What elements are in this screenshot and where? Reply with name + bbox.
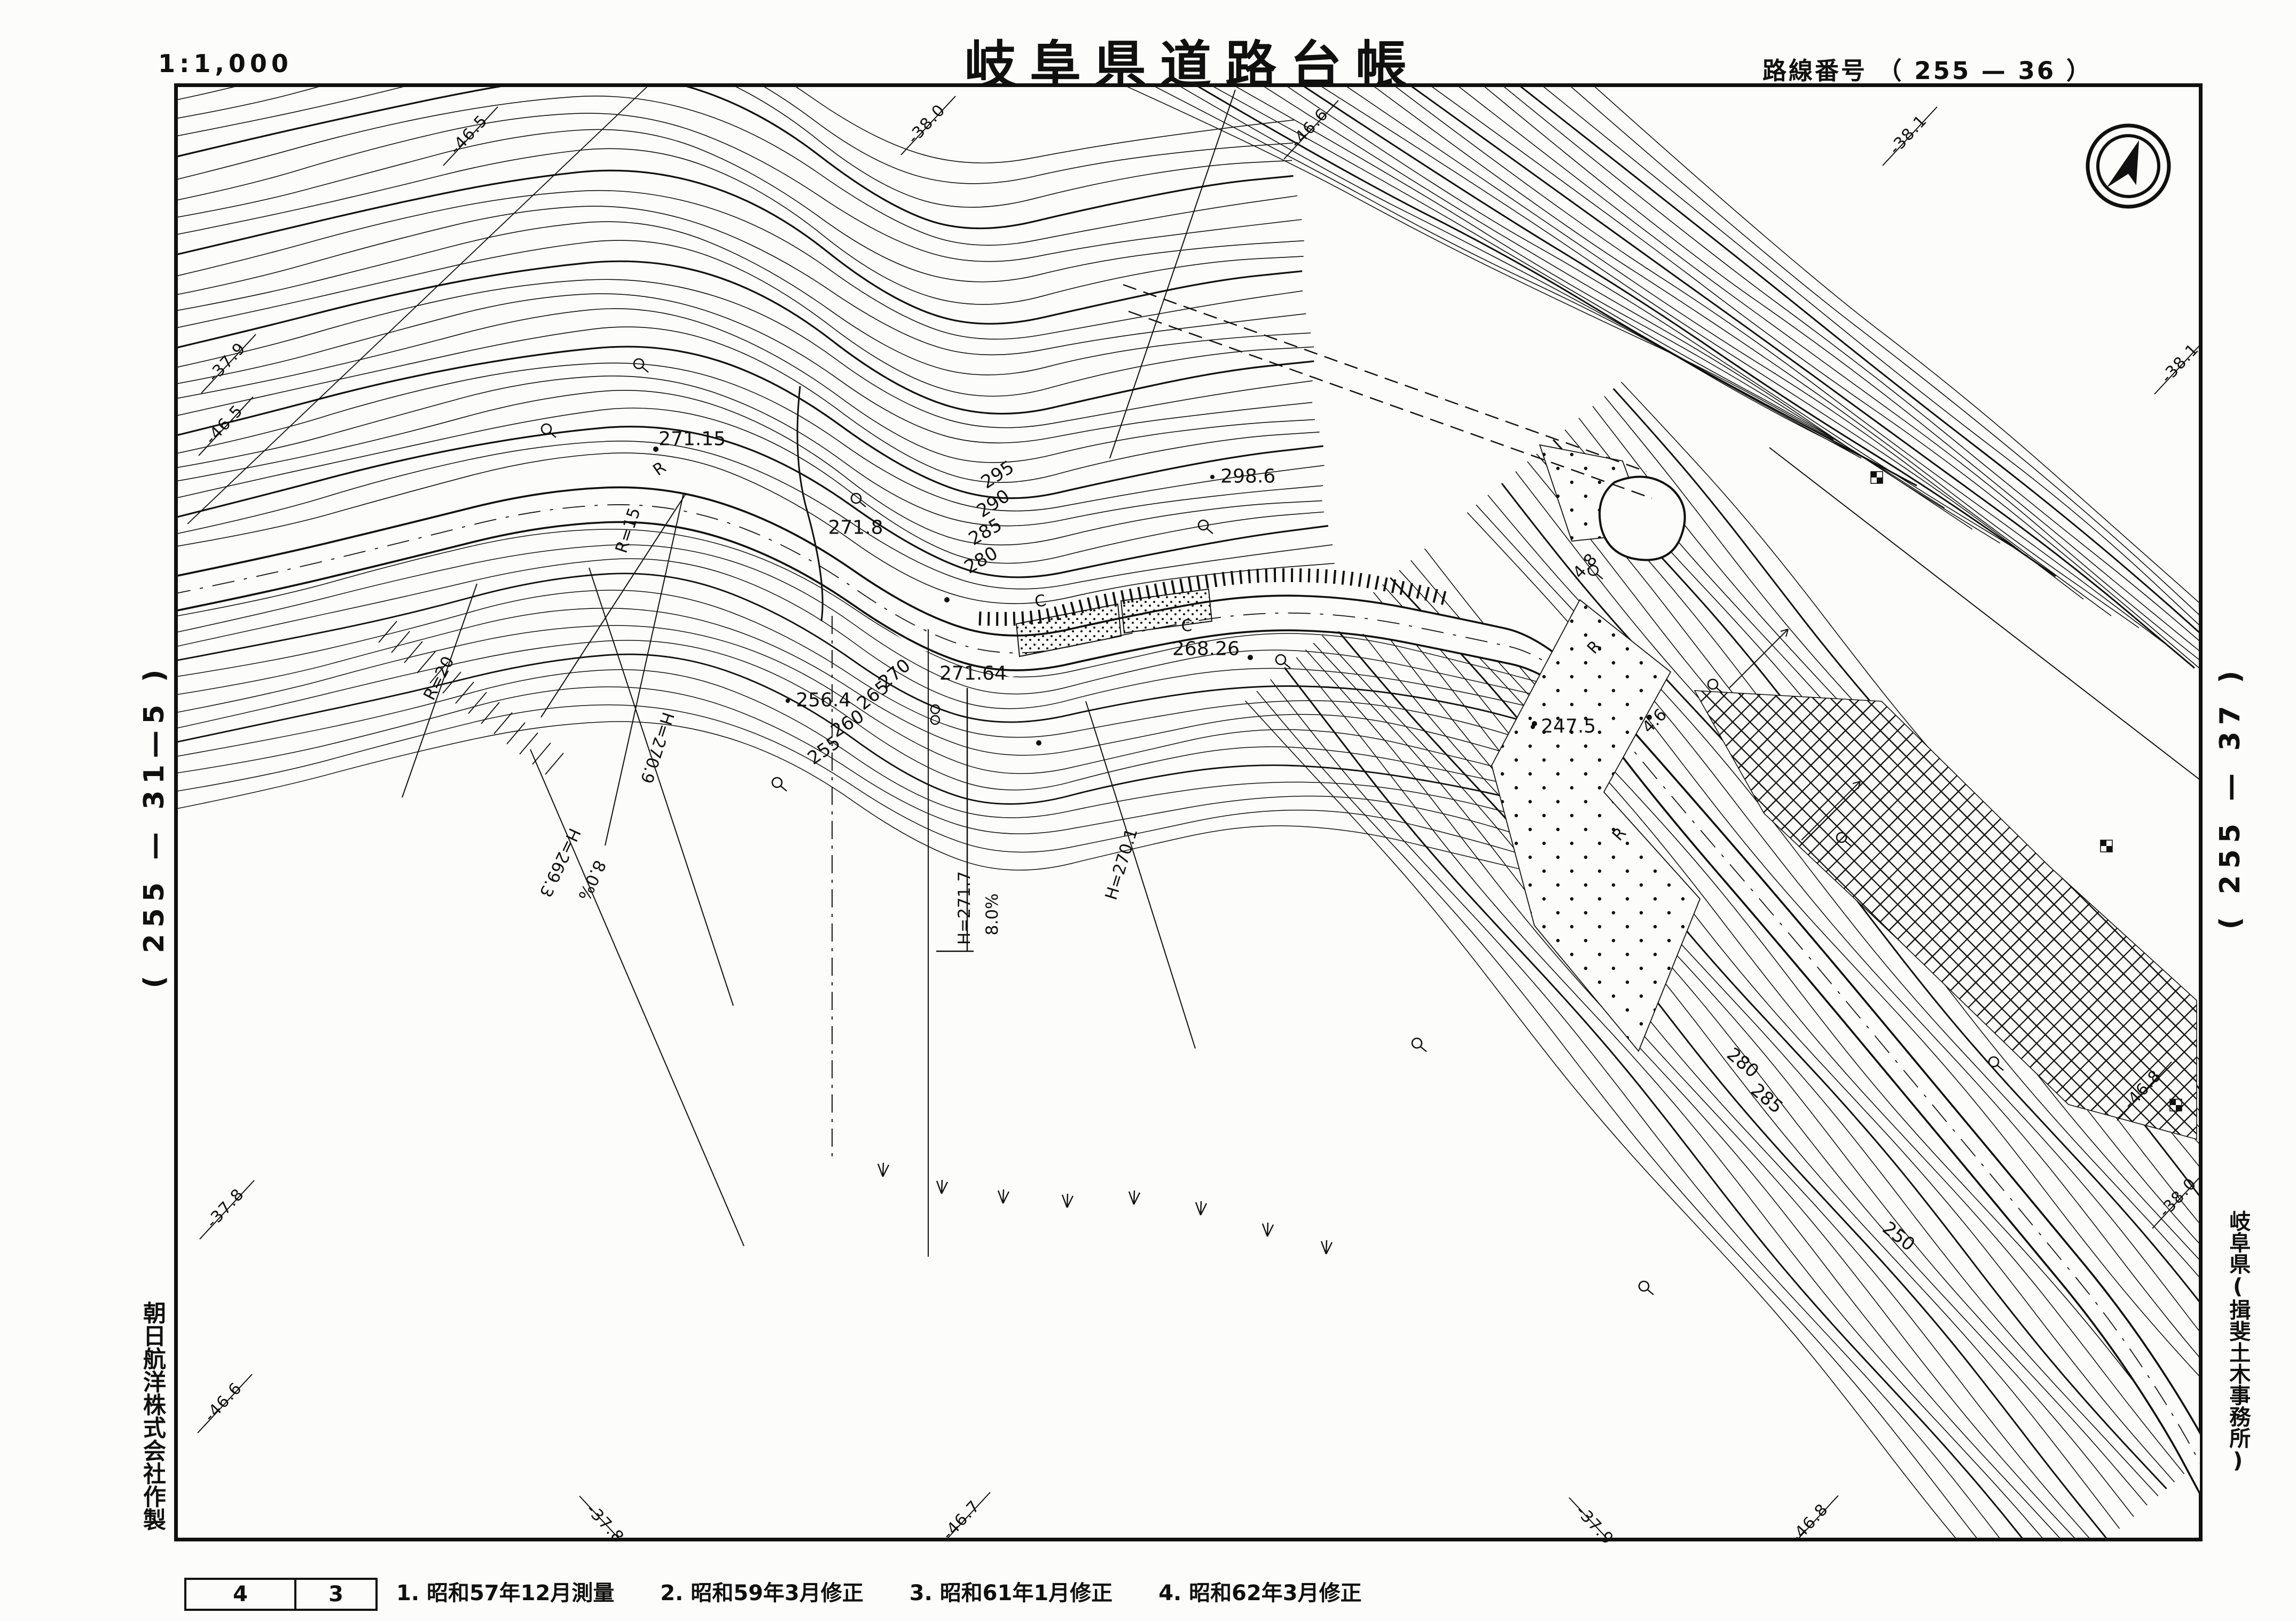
revision-note: 2. 昭和59年3月修正 xyxy=(660,1576,863,1607)
spot-elevation: 298.6 xyxy=(1208,466,1276,488)
spot-elevation: 271.64 xyxy=(939,663,1007,685)
revision-history: 1. 昭和57年12月測量 2. 昭和59年3月修正 3. 昭和61年1月修正 … xyxy=(396,1576,1362,1607)
sheet-index-cell: 4 xyxy=(184,1578,296,1611)
spot-elevation: 268.26 xyxy=(1172,638,1240,660)
grade-label: 8.0% xyxy=(983,894,1002,936)
spot-elevation: 271.15 xyxy=(659,428,726,450)
road-letter: C xyxy=(1181,617,1193,636)
managing-office: 岐阜県(揖斐土木事務所) xyxy=(2226,1210,2249,1473)
route-number: 路線番号 （ 255 — 36 ） xyxy=(1762,51,2093,86)
map-canvas xyxy=(178,87,2200,1538)
road-ledger-sheet: 1:1,000 岐阜県道路台帳 路線番号 （ 255 — 36 ） -46.5 … xyxy=(0,0,2296,1621)
revision-note: 1. 昭和57年12月測量 xyxy=(396,1576,614,1607)
revision-note: 3. 昭和61年1月修正 xyxy=(910,1576,1112,1607)
section-label: H=271.7 xyxy=(955,871,974,945)
spot-elevation: 247.5 xyxy=(1529,716,1596,738)
map-scale: 1:1,000 xyxy=(158,49,293,78)
adjacent-sheet-right: ( 255 — 37 ) xyxy=(2214,664,2246,930)
sheet-index-cell: 3 xyxy=(296,1578,378,1611)
spot-elevation: 256.4 xyxy=(783,690,851,711)
spot-elevation: 271.8 xyxy=(828,517,883,539)
maker-credit: 朝日航洋株式会社作製 xyxy=(140,1301,164,1531)
sheet-index-table: 4 3 xyxy=(184,1578,378,1611)
adjacent-sheet-left: ( 255 — 31—5 ) xyxy=(138,663,170,988)
revision-note: 4. 昭和62年3月修正 xyxy=(1158,1576,1361,1607)
north-arrow-icon xyxy=(2086,123,2171,208)
